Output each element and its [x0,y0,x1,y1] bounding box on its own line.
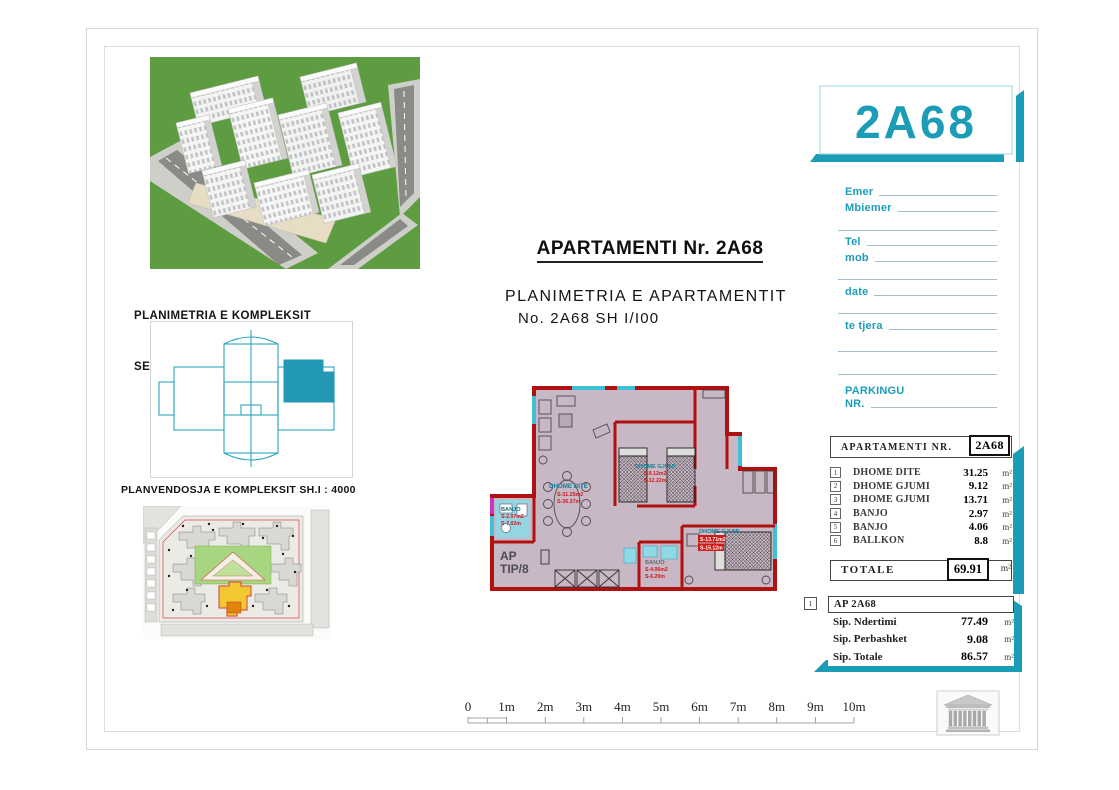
svg-text:S-9.12m2: S-9.12m2 [644,471,667,477]
page-subtitle-2: No. 2A68 SH I/I00 [518,310,659,327]
rooms-table-total: TOTALE 69.91 m² [830,560,1012,581]
svg-text:3m: 3m [575,699,592,714]
svg-text:10m: 10m [842,699,865,714]
form-blank-line [838,374,997,375]
form-blank-line [838,351,997,352]
table-row: 5 BANJO 4.06 m² [830,520,1012,534]
form-line-emer: Emer [845,186,997,198]
site-plan [143,506,331,639]
form-line-date: date [845,286,997,298]
section-plan [150,321,353,478]
summary-table: AP 2A68 Sip. Ndertimi 77.49 m² Sip. Perb… [828,596,1014,666]
summary-row: Sip. Totale 86.57 m² [828,648,1014,666]
table-row: 4 BANJO 2.97 m² [830,507,1012,521]
svg-text:7m: 7m [730,699,747,714]
svg-text:0: 0 [465,699,472,714]
room-label-bedroom1: DHOME GJUMI [635,464,676,470]
svg-text:1m: 1m [498,699,515,714]
page-title: APARTAMENTI Nr. 2A68 [500,238,800,260]
unit-badge: 2A68 [808,82,1028,170]
room-label-bath2: BANJO [645,560,665,566]
complex-3d-render [150,57,420,269]
svg-text:8m: 8m [768,699,785,714]
summary-row: Sip. Ndertimi 77.49 m² [828,613,1014,631]
svg-text:9m: 9m [807,699,824,714]
rooms-table-header: APARTAMENTI NR. 2A68 [830,436,1012,458]
plan-sheet: { "sheet": { "badge": "2A68", "title": "… [0,0,1119,790]
rooms-table-unit-number: 2A68 [969,435,1010,456]
summary-index: 1 [804,597,817,610]
form-blank-line [838,230,997,231]
table-row: 6 BALLKON 8.8 m² [830,534,1012,548]
svg-text:S-31.25m2: S-31.25m2 [557,492,583,498]
apartment-type-label-2: TIP/8 [500,562,529,576]
svg-text:S-12.22m: S-12.22m [644,478,667,484]
total-area-value: 69.91 [947,558,989,581]
room-label-bath1: BANJO [501,507,521,513]
table-shadow-bar [1013,446,1024,594]
svg-text:5m: 5m [653,699,670,714]
form-line-mbiemer: Mbiemer [845,202,997,214]
svg-text:S-36.37m: S-36.37m [557,499,581,505]
unit-badge-number: 2A68 [855,96,977,148]
temple-logo-icon [936,690,1000,740]
table-row: 1 DHOME DITE 31.25 m² [830,466,1012,480]
svg-text:S-6.20m: S-6.20m [645,574,665,580]
svg-text:S-4.06m2: S-4.06m2 [645,567,668,573]
svg-text:S-7.02m: S-7.02m [501,521,521,527]
summary-header: AP 2A68 [828,596,1014,613]
form-blank-line [838,279,997,280]
svg-text:S-13.71m2: S-13.71m2 [700,537,726,543]
rooms-table: APARTAMENTI NR. 2A68 1 DHOME DITE 31.25 … [830,436,1012,581]
form-label-parkingu: PARKINGU [845,385,997,397]
form-blank-line [838,313,997,314]
table-row: 3 DHOME GJUMI 13.71 m² [830,493,1012,507]
page-subtitle-1: PLANIMETRIA E APARTAMENTIT [505,288,787,306]
apartment-type-label-1: AP [500,549,517,563]
form-line-parking-nr: NR. [845,398,997,410]
summary-row: Sip. Perbashket 9.08 m² [828,631,1014,649]
scale-bar: 0 1m 2m 3m 4m 5m 6m 7m 8m 9m 10m [450,697,880,731]
apartment-floor-plan: DHOME DITE S-31.25m2 S-36.37m DHOME GJUM… [477,374,790,604]
siteplan-caption: PLANVENDOSJA E KOMPLEKSIT SH.I : 4000 [121,484,356,496]
svg-text:S-2.97m2: S-2.97m2 [501,514,524,520]
table-row: 2 DHOME GJUMI 9.12 m² [830,480,1012,494]
svg-text:4m: 4m [614,699,631,714]
svg-text:S-15.12m: S-15.12m [700,546,723,552]
form-line-tel: Tel [845,236,997,248]
svg-text:2m: 2m [537,699,554,714]
form-line-te-tjera: te tjera [845,320,997,332]
svg-text:6m: 6m [691,699,708,714]
room-label-bedroom2: DHOME GJUMI [699,529,740,535]
room-label-living: DHOME DITE [549,483,588,490]
form-line-mob: mob [845,252,997,264]
